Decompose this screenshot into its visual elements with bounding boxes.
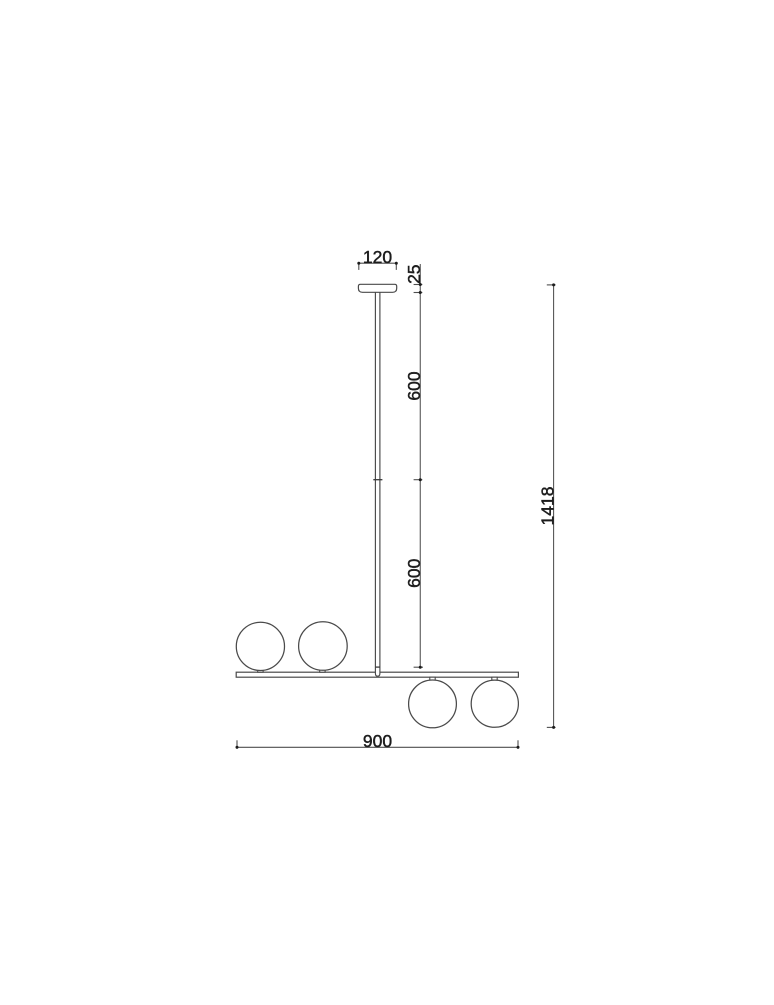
svg-text:600: 600 <box>404 371 424 400</box>
svg-text:900: 900 <box>363 731 392 751</box>
svg-text:120: 120 <box>363 247 392 267</box>
svg-text:25: 25 <box>404 264 424 283</box>
svg-text:1418: 1418 <box>537 487 557 526</box>
svg-text:600: 600 <box>404 558 424 587</box>
